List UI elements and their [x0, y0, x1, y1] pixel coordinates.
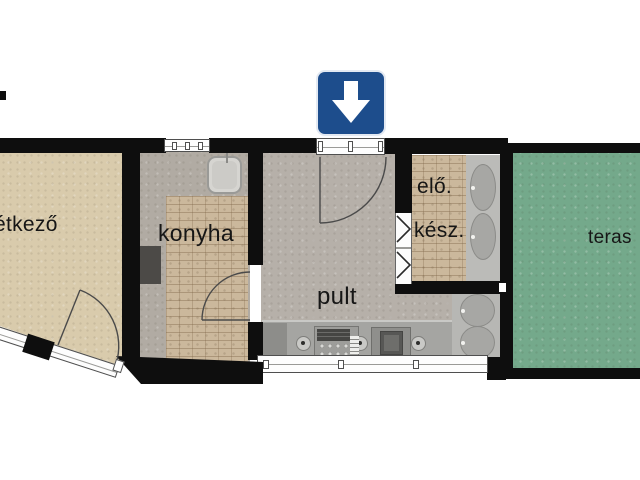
pantry-label: kész.: [414, 219, 465, 243]
kitchen-label: konyha: [158, 220, 234, 247]
entry-door-swing-arc: [320, 157, 386, 223]
kitchen-door-swing-arc: [202, 272, 250, 320]
floor-plan-canvas: étkező konyha pult elő. kész. teras: [0, 0, 640, 480]
folding-door-symbol-2: [397, 252, 410, 278]
dining-door-swing-arc: [80, 290, 119, 364]
dining-room-label: étkező: [0, 213, 58, 237]
entrance-direction-sign: [318, 72, 384, 134]
counter-label: pult: [317, 283, 357, 311]
down-arrow-icon: [318, 72, 384, 134]
terrace-label: teras: [588, 227, 632, 249]
folding-door-symbol-1: [397, 216, 410, 242]
dining-door-leaf: [58, 290, 80, 345]
kitchen-bottom-wall: [116, 356, 263, 384]
hall-label: elő.: [417, 175, 452, 199]
